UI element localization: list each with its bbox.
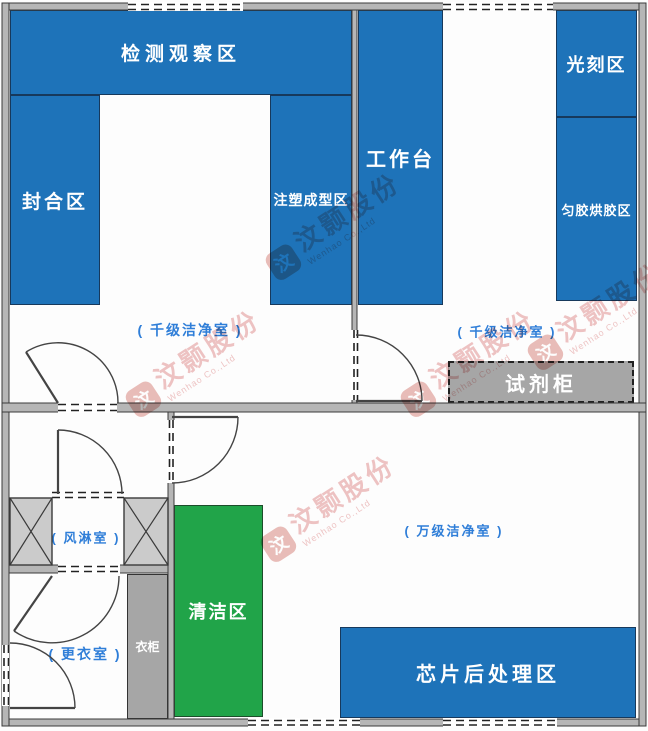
opening-workbench-wall	[351, 330, 358, 400]
zone-chip-post-processing: 芯片后处理区	[340, 627, 636, 718]
watermark: 汶 汶颢股份 Wenhao Co.,Ltd	[255, 451, 407, 569]
opening-dividing-wall	[58, 402, 117, 413]
dashes-changing-room-top	[58, 567, 120, 572]
watermark-text: 汶颢股份	[284, 449, 401, 540]
door-chamber-to-w-class	[172, 417, 238, 483]
zone-inspection-observation: 检测观察区	[10, 10, 352, 95]
watermark-logo-icon: 汶	[122, 378, 163, 419]
air-shower-x-left	[10, 498, 52, 565]
dashes-top-2	[443, 5, 553, 10]
label-k-class-cleanroom-right: ( 千级洁净室 )	[458, 322, 557, 341]
opening-top-2	[443, 2, 553, 11]
watermark-logo-icon: 汶	[257, 523, 298, 564]
zone-workbench: 工作台	[358, 10, 443, 305]
zone-sealing: 封合区	[10, 95, 100, 305]
zone-glue-coating-baking: 匀胶烘胶区	[556, 117, 637, 301]
air-shower-x-right	[124, 498, 168, 565]
dashes-dividing-wall	[58, 405, 117, 411]
label-air-shower-room: ( 风淋室 )	[52, 528, 121, 547]
dashes-workbench-wall	[354, 330, 358, 400]
zone-label: 匀胶烘胶区	[561, 200, 631, 219]
wall-upper-rooms-divider	[352, 10, 357, 403]
zone-label: 检测观察区	[121, 39, 241, 66]
wardrobe-cabinet: 衣柜	[127, 574, 168, 719]
wall-top	[2, 3, 646, 10]
zone-label: 光刻区	[567, 51, 627, 77]
door-vestibule-to-air-shower	[58, 430, 122, 494]
reagent-cabinet: 试剂柜	[448, 361, 634, 403]
label-w-class-cleanroom: ( 万级洁净室 )	[405, 521, 504, 540]
wall-changing-room-top	[9, 565, 168, 573]
dashes-bottom-2	[443, 721, 557, 726]
dashes-left-wall	[4, 645, 9, 706]
zone-label: 试剂柜	[505, 368, 577, 397]
cleanroom-floor-plan: 检测观察区 封合区 注塑成型区 工作台 光刻区 匀胶烘胶区 试剂柜 清洁区 衣柜…	[0, 0, 648, 731]
wall-bottom	[2, 719, 646, 726]
zone-label: 清洁区	[189, 598, 249, 624]
watermark-subtext: Wenhao Co.,Ltd	[166, 330, 272, 404]
door-workbench-wall	[356, 335, 422, 401]
watermark-subtext: Wenhao Co.,Ltd	[301, 475, 407, 549]
air-shower-box-left	[10, 498, 52, 565]
label-k-class-cleanroom-left: ( 千级洁净室 )	[137, 320, 242, 340]
wall-right	[639, 3, 646, 726]
dashes-air-shower-top	[52, 493, 124, 498]
dashes-chamber-wall	[170, 420, 174, 483]
zone-cleaning: 清洁区	[174, 505, 263, 717]
air-shower-box-right	[124, 498, 168, 565]
watermark-logo-icon: 汶	[397, 378, 438, 419]
zone-label: 工作台	[366, 143, 435, 172]
door-cleanroom-to-vestibule	[26, 343, 118, 403]
label-changing-room: ( 更衣室 )	[48, 644, 121, 664]
zone-injection-molding: 注塑成型区	[270, 95, 352, 305]
zone-label: 封合区	[22, 187, 88, 214]
watermark-text: 汶颢股份	[149, 304, 266, 395]
zone-label: 衣柜	[135, 638, 159, 655]
opening-changing-room-top	[58, 564, 120, 574]
opening-bottom-1	[248, 718, 360, 727]
opening-left-wall	[2, 645, 9, 706]
zone-lithography: 光刻区	[556, 10, 637, 117]
opening-bottom-2	[443, 718, 557, 727]
wall-dividing	[2, 403, 646, 412]
dashes-bottom-1	[248, 721, 360, 726]
wall-left	[2, 3, 9, 726]
opening-chamber-wall	[167, 420, 175, 483]
zone-label: 芯片后处理区	[416, 658, 560, 687]
door-changing-room-top	[14, 576, 119, 643]
dashes-top-1	[128, 5, 243, 10]
zone-label: 注塑成型区	[274, 190, 349, 210]
